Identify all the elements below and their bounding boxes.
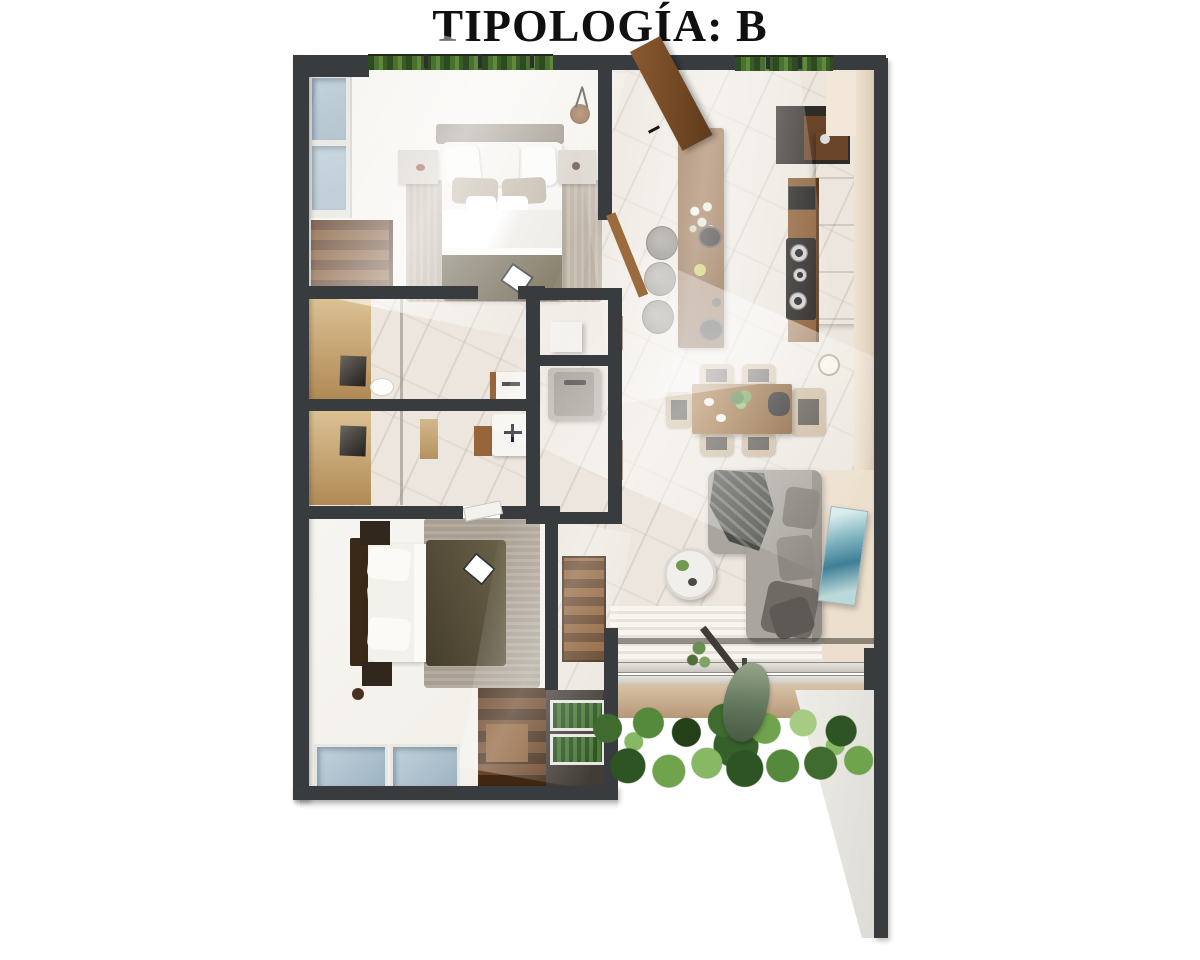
bedroom1-shelf-cell: [312, 146, 346, 210]
hall-bookshelf: [562, 556, 606, 662]
dining-armchair: [792, 388, 826, 436]
window-mullion: [478, 54, 482, 68]
window-mullion: [798, 55, 802, 69]
island-cup: [712, 298, 721, 307]
coffee-table-plant: [676, 560, 689, 571]
toilet: [370, 378, 394, 396]
sofa-pillow: [781, 486, 820, 530]
nightstand-decor: [572, 162, 580, 170]
bedroom2-shelf-cell: [390, 744, 460, 790]
bedroom2-duvet: [426, 540, 506, 666]
coffee-table: [664, 548, 716, 600]
wall-bottom: [293, 786, 618, 800]
bed-pillow: [367, 580, 414, 618]
island-plate: [698, 318, 724, 342]
wall-top-corner: [293, 55, 369, 77]
vanity2-counter: [474, 426, 492, 456]
window-mullion: [530, 54, 534, 68]
shower1-head: [339, 356, 366, 387]
bar-stool: [646, 226, 678, 260]
bath2-bench: [420, 419, 438, 459]
washer-slot: [564, 380, 586, 385]
dining-chair: [666, 392, 692, 428]
wall-clock: [818, 354, 840, 376]
terrace-plant-sprig: [686, 640, 712, 680]
bedroom1-wardrobe: [311, 220, 393, 290]
window-greenery: [735, 55, 833, 71]
microwave: [788, 186, 816, 210]
wall-bedroom2-right: [545, 506, 558, 690]
page-title: TIPOLOGÍA: B: [0, 0, 1200, 52]
coffee-table-item: [688, 578, 697, 586]
bed-pillow: [366, 546, 411, 582]
water-heater: [550, 322, 582, 352]
wall-between-bathrooms: [293, 399, 535, 411]
dining-chair: [742, 432, 776, 456]
bedroom2-headboard: [350, 538, 368, 666]
table-plant: [728, 388, 754, 410]
shower2-glass: [400, 411, 403, 505]
burner: [789, 292, 807, 310]
window-greenery: [368, 54, 553, 70]
burner: [790, 244, 808, 262]
bar-stool: [644, 262, 676, 296]
shower2-head: [339, 426, 366, 457]
floor-plan-image: TIPOLOGÍA: B: [0, 0, 1200, 960]
nightstand-dark: [360, 521, 390, 545]
shower1-glass: [400, 299, 403, 399]
table-plate: [704, 398, 714, 406]
vanity2-faucet: [511, 424, 514, 442]
exterior-shadow: [300, 800, 618, 810]
washer-top: [554, 372, 594, 416]
wall-bedroom2-top: [293, 506, 463, 519]
wall-bathrooms-top: [293, 286, 478, 299]
nightstand-decor: [416, 164, 425, 171]
bedroom2-wardrobe-panel: [486, 724, 528, 762]
bar-stool: [642, 300, 674, 334]
nightstand-dark: [362, 662, 392, 686]
burner: [793, 268, 807, 282]
terrace-threshold: [610, 638, 876, 644]
dining-chair: [700, 432, 734, 456]
floor-mug: [352, 688, 364, 700]
window-mullion: [424, 54, 428, 68]
table-lamp: [768, 392, 790, 416]
island-lemon: [694, 264, 706, 276]
island-plate: [698, 226, 722, 248]
window-mullion: [766, 55, 770, 69]
wall-left: [293, 55, 309, 800]
bedroom2-shelf-cell: [314, 744, 388, 790]
right-wall-face-top: [826, 70, 856, 136]
bedroom1-headboard: [436, 124, 564, 144]
vanity1-slot: [502, 382, 520, 386]
table-plate: [716, 414, 726, 422]
closet-wall-left: [526, 288, 540, 524]
wall-bedroom1-right: [598, 58, 612, 220]
closet-wall-right: [608, 288, 622, 524]
bed-pillow: [367, 616, 412, 652]
bedroom1-shelf-cell: [312, 78, 346, 140]
sofa-pillow: [776, 534, 816, 582]
